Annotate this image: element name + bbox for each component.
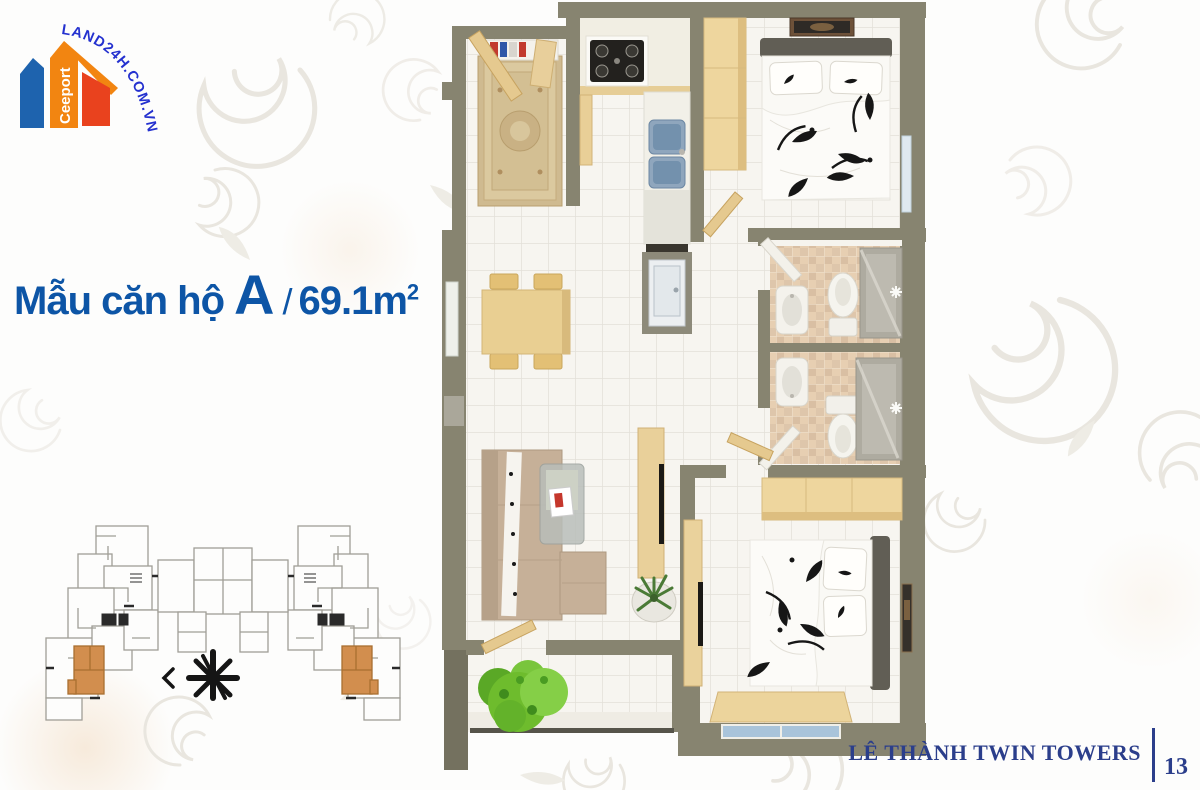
bathroom1-toilet <box>828 273 858 336</box>
footer-page-number: 13 <box>1164 754 1188 781</box>
tv-screen <box>659 464 664 544</box>
title-unit-letter: A <box>234 262 274 327</box>
compass-north-icon <box>164 652 237 698</box>
bedroom1-wardrobe <box>704 18 746 170</box>
apartment-floorplan <box>440 0 940 775</box>
title-area-value: 69.1m2 <box>299 279 419 324</box>
faucet-icon <box>679 149 685 155</box>
title-area-superscript: 2 <box>407 280 418 305</box>
bedroom2-tv-stand <box>684 520 703 686</box>
bathroom2-sink <box>776 358 808 406</box>
tv-screen <box>698 582 703 646</box>
bedroom1-bed <box>760 38 892 200</box>
bathroom1-shower <box>860 248 902 338</box>
bedroom2-wall-picture <box>902 584 912 652</box>
pillow <box>769 61 822 95</box>
living-tv-cabinet <box>638 428 664 578</box>
siteplan-center-block <box>152 548 294 652</box>
bedroom1-window <box>902 136 911 212</box>
title-prefix: Mẫu căn hộ <box>14 279 224 324</box>
siteplan-unit-a-highlight <box>68 646 104 694</box>
pillow <box>823 547 867 591</box>
kitchen-side-counter <box>580 95 592 165</box>
footer: LÊ THÀNH TWIN TOWERS 13 <box>848 728 1188 782</box>
footer-project-name: LÊ THÀNH TWIN TOWERS <box>848 740 1141 766</box>
title-separator: / <box>282 281 292 323</box>
siteplan-key-plan <box>38 518 408 748</box>
bedroom2-wardrobe <box>762 478 902 520</box>
pillow <box>829 61 882 95</box>
page-title: Mẫu căn hộ A / 69.1m2 <box>14 262 418 327</box>
kitchen-sink-counter <box>644 92 690 244</box>
bathroom2-toilet <box>826 396 860 458</box>
coffee-table <box>540 464 584 544</box>
bathroom2-shower <box>856 358 902 460</box>
land24h-logo: Ceeport LAND24H.COM.VN <box>6 8 186 143</box>
bedroom2-window <box>722 725 840 738</box>
logo-brand-text: Ceeport <box>57 67 74 124</box>
living-window <box>446 282 458 356</box>
room-entry-foyer <box>469 31 562 206</box>
footer-divider <box>1152 728 1155 782</box>
bedroom1-wall-picture <box>790 18 854 36</box>
kitchen-stove <box>586 36 648 86</box>
bedroom2-bed <box>745 536 890 690</box>
bedroom2-low-cabinet <box>710 692 852 722</box>
kitchen-appliance-niche <box>642 244 692 334</box>
pillow <box>823 595 866 636</box>
bathroom1-sink <box>776 286 808 334</box>
